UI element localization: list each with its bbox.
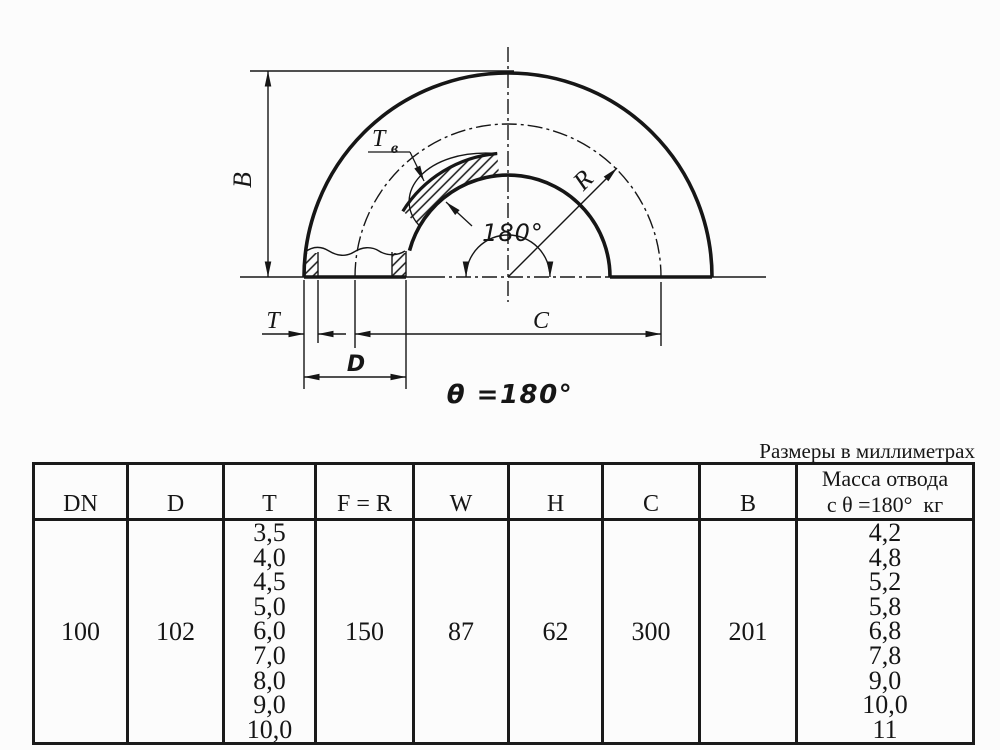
cell-line: 3,5 xyxy=(225,521,314,546)
tb-thickness-arrow xyxy=(446,202,472,226)
cell-mass-values: 4,24,85,25,86,87,89,010,011 xyxy=(797,520,974,744)
angle-label: 180° xyxy=(482,219,544,247)
col-header-w: W xyxy=(414,464,509,520)
break-wavy-line xyxy=(305,247,405,255)
cutaway-hatch-band xyxy=(403,154,499,227)
col-header-fr: F = R xyxy=(316,464,414,520)
col-header-mass: Масса отвода с θ =180° кг xyxy=(797,464,974,520)
col-header-dn: DN xyxy=(34,464,128,520)
cell-t-values: 3,54,04,55,06,07,08,09,010,0 xyxy=(224,520,316,744)
cell-line: 10,0 xyxy=(225,718,314,743)
cell-line: 7,8 xyxy=(798,644,972,669)
tb-leader-arrow xyxy=(410,152,424,181)
col-header-c: C xyxy=(603,464,700,520)
wall-hatch-right xyxy=(392,253,406,276)
tb-label-subscript: в xyxy=(391,140,398,157)
cell-h: 62 xyxy=(509,520,603,744)
units-note: Размеры в миллиметрах xyxy=(759,439,975,464)
cell-line: 11 xyxy=(798,718,972,743)
table-row: 100 102 3,54,04,55,06,07,08,09,010,0 150… xyxy=(34,520,974,744)
cell-fr: 150 xyxy=(316,520,414,744)
page: B Т в R 180° T C D θ =180° Размеры в мил… xyxy=(0,0,1000,750)
col-header-b: B xyxy=(700,464,797,520)
col-header-d: D xyxy=(128,464,224,520)
cell-dn: 100 xyxy=(34,520,128,744)
mass-header-line2: с θ =180° кг xyxy=(798,492,972,518)
cell-c: 300 xyxy=(603,520,700,744)
cell-line: 4,2 xyxy=(798,521,972,546)
elbow-technical-drawing: B Т в R 180° T C D θ =180° xyxy=(0,0,1000,440)
dimensions-table: DN D T F = R W H C B Масса отвода с θ =1… xyxy=(32,462,975,745)
mass-header-line1: Масса отвода xyxy=(798,466,972,492)
col-header-t: T xyxy=(224,464,316,520)
dim-label-c: C xyxy=(533,308,550,334)
cell-b: 201 xyxy=(700,520,797,744)
col-header-h: H xyxy=(509,464,603,520)
wall-hatch-left xyxy=(305,253,318,276)
dim-label-b: B xyxy=(228,172,257,188)
dim-label-t: T xyxy=(266,308,281,334)
theta-equation-label: θ =180° xyxy=(447,380,573,410)
dim-label-d: D xyxy=(347,352,365,377)
cell-line: 7,0 xyxy=(225,644,314,669)
cell-d: 102 xyxy=(128,520,224,744)
header-row: DN D T F = R W H C B Масса отвода с θ =1… xyxy=(34,464,974,520)
tb-label: Т xyxy=(372,126,387,152)
cell-w: 87 xyxy=(414,520,509,744)
